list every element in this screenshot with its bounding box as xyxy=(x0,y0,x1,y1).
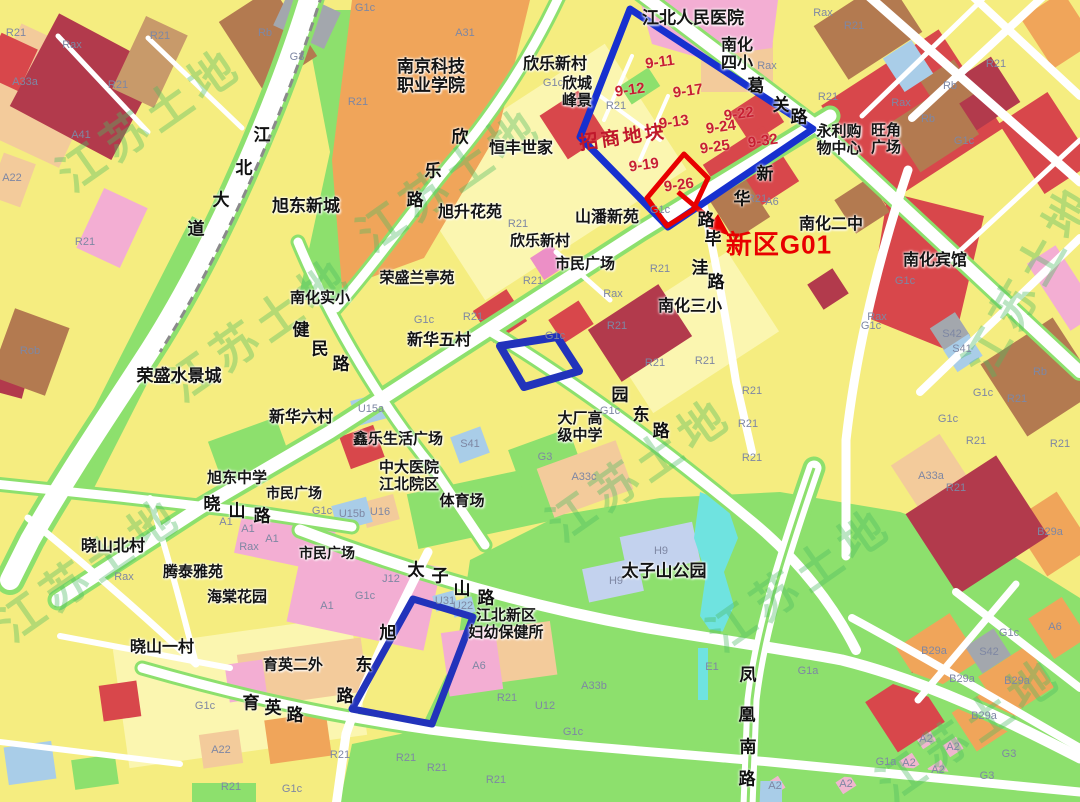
zone-code-r21: R21 xyxy=(348,96,368,108)
zone-code-g3: G3 xyxy=(980,770,995,782)
place-label: 山潘新苑 xyxy=(575,208,639,226)
place-label: 南化宾馆 xyxy=(903,251,967,269)
zone-code-r21: R21 xyxy=(486,774,506,786)
zone-code-a41: A41 xyxy=(71,129,91,141)
zone-code-s42: S42 xyxy=(979,646,999,658)
zone-code-g1c: G1c xyxy=(195,700,215,712)
zone-code-r21: R21 xyxy=(6,27,26,39)
jiangbei-avenue-label-char: 江 xyxy=(254,126,271,145)
zone-code-h9: H9 xyxy=(654,545,668,557)
zone-code-s41: S41 xyxy=(952,343,972,355)
place-label: 腾泰雅苑 xyxy=(163,564,223,581)
zone-code-rax: Rax xyxy=(813,7,833,19)
zone-code-a2: A2 xyxy=(931,764,944,776)
target-parcel-label: 新区G01 xyxy=(726,230,832,259)
biwa-road-label-char: 毕 xyxy=(705,230,722,249)
yuying-road-label-char: 育 xyxy=(243,694,260,713)
place-label: 旺角 广场 xyxy=(871,122,901,156)
zone-code-a2: A2 xyxy=(902,757,915,769)
taizishan-road-label-char: 山 xyxy=(454,580,471,599)
taizishan-road-label-char: 子 xyxy=(432,567,449,586)
zone-code-a2: A2 xyxy=(768,780,781,792)
zone-code-g1c: G1c xyxy=(650,204,670,216)
jiangbei-avenue-label-char: 道 xyxy=(188,220,205,239)
place-label: 旭东新城 xyxy=(272,197,340,216)
parcel-number-9-19: 9-19 xyxy=(628,156,660,177)
place-label: 荣盛水景城 xyxy=(137,367,222,386)
zone-code-a1: A1 xyxy=(320,600,333,612)
zone-code-g1c: G1c xyxy=(861,320,881,332)
zone-code-r21: R21 xyxy=(1050,438,1070,450)
jianmin-road-label-char: 民 xyxy=(312,340,329,359)
fenghuang-south-road-label-char: 路 xyxy=(739,770,756,789)
geguan-road-label-char: 路 xyxy=(791,108,808,127)
place-label: 恒丰世家 xyxy=(489,139,553,157)
zone-code-a2: A2 xyxy=(919,733,932,745)
zone-code-a33b: A33b xyxy=(581,680,607,692)
zone-code-r21: R21 xyxy=(523,275,543,287)
yuandong-road-label-char: 东 xyxy=(633,406,650,425)
place-label: 欣城 峰景 xyxy=(562,75,592,109)
yuying-road-label-char: 路 xyxy=(287,706,304,725)
zone-code-g1a: G1a xyxy=(876,756,897,768)
watermark: 江苏土地 xyxy=(698,498,901,662)
zone-code-g1c: G1c xyxy=(563,726,583,738)
place-label: 晓山一村 xyxy=(130,638,194,656)
place-label: 育英二外 xyxy=(263,657,323,674)
zone-code-a2: A2 xyxy=(839,778,852,790)
zone-code-rob: Rob xyxy=(20,345,40,357)
zone-code-a31: A31 xyxy=(455,27,475,39)
zone-code-g1c: G1c xyxy=(999,627,1019,639)
zone-code-rax: Rax xyxy=(891,97,911,109)
zone-code-b29a: B29a xyxy=(971,710,997,722)
place-label: 大厂高 级中学 xyxy=(557,410,602,444)
fenghuang-south-road-label-char: 南 xyxy=(740,738,757,757)
zone-code-g3: G3 xyxy=(290,51,305,63)
zone-code-g1c: G1c xyxy=(600,405,620,417)
zone-code-g1a: G1a xyxy=(798,665,819,677)
zone-code-rb: Rb xyxy=(921,113,935,125)
xudong-road-label-char: 东 xyxy=(356,656,373,675)
zone-code-r21: R21 xyxy=(738,418,758,430)
xinle-road-label-char: 乐 xyxy=(425,162,442,181)
zone-code-g1c: G1c xyxy=(355,590,375,602)
jiangbei-avenue-label-char: 北 xyxy=(236,159,253,178)
zone-code-g1c: G1c xyxy=(355,2,375,14)
biwa-road-label-char: 洼 xyxy=(692,259,709,278)
zone-code-rax: Rax xyxy=(603,288,623,300)
zone-code-g1c: G1c xyxy=(282,783,302,795)
watermark: 江苏土地 xyxy=(868,648,1071,802)
parcel-number-9-11: 9-11 xyxy=(644,53,675,74)
parcel-number-9-24: 9-24 xyxy=(705,118,737,139)
xinle-road-label-char: 欣 xyxy=(452,128,469,147)
xinhua-road-label-char: 华 xyxy=(734,190,751,209)
place-label: 海棠花园 xyxy=(207,589,267,606)
biwa-road-label-char: 路 xyxy=(708,273,725,292)
jianmin-road-label-char: 路 xyxy=(333,355,350,374)
geguan-road-label-char: 葛 xyxy=(748,77,765,96)
watermark: 江苏土地 xyxy=(48,38,251,202)
zone-code-r21: R21 xyxy=(966,435,986,447)
zone-code-r21: R21 xyxy=(986,58,1006,70)
geguan-road-label-char: 关 xyxy=(773,96,790,115)
place-label: 中大医院 江北院区 xyxy=(379,459,439,493)
zone-code-r21: R21 xyxy=(75,236,95,248)
zone-code-a6: A6 xyxy=(472,660,485,672)
zone-code-rax: Rax xyxy=(62,39,82,51)
zone-code-a22: A22 xyxy=(2,172,22,184)
zoning-map: 江苏土地江苏土地江苏土地江苏土地江苏土地江苏土地江苏土地江苏土地R21R21R2… xyxy=(0,0,1080,802)
zone-code-r21: R21 xyxy=(150,30,170,42)
place-label: 荣盛兰亭苑 xyxy=(379,270,454,287)
zone-code-r21: R21 xyxy=(606,100,626,112)
zone-code-g1c: G1c xyxy=(543,77,563,89)
zone-code-r21: R21 xyxy=(650,263,670,275)
place-label: 市民广场 xyxy=(266,487,322,503)
zone-code-g3: G3 xyxy=(1002,748,1017,760)
zone-code-g3: G3 xyxy=(538,451,553,463)
zone-code-g1c: G1c xyxy=(973,387,993,399)
place-label: 永利购 物中心 xyxy=(816,123,861,157)
zone-code-u16: U16 xyxy=(370,506,390,518)
parcel-number-9-17: 9-17 xyxy=(672,82,704,103)
label-layer: 江苏土地江苏土地江苏土地江苏土地江苏土地江苏土地江苏土地江苏土地R21R21R2… xyxy=(0,0,1080,802)
xinhua-road-label-char: 路 xyxy=(698,211,715,230)
zone-code-rb: Rb xyxy=(258,27,272,39)
place-label: 欣乐新村 xyxy=(510,233,570,250)
xinhua-road-label-char: 新 xyxy=(757,165,774,184)
zone-code-r21: R21 xyxy=(645,357,665,369)
zone-code-r21: R21 xyxy=(844,20,864,32)
zone-code-g1c: G1c xyxy=(545,330,565,342)
place-label: 旭升花苑 xyxy=(438,203,502,221)
zone-code-a6: A6 xyxy=(765,196,778,208)
zone-code-g1c: G1c xyxy=(414,314,434,326)
watermark: 江苏土地 xyxy=(158,248,361,412)
fenghuang-south-road-label-char: 凰 xyxy=(739,706,756,725)
zone-code-a2: A2 xyxy=(946,741,959,753)
jianmin-road-label-char: 健 xyxy=(293,321,310,340)
yuandong-road-label-char: 园 xyxy=(612,386,629,405)
zone-code-r21: R21 xyxy=(108,79,128,91)
place-label: 太子山公园 xyxy=(622,562,707,581)
xiaoshan-road-label-char: 山 xyxy=(229,502,246,521)
place-label: 晓山北村 xyxy=(81,537,145,555)
zone-code-j12: J12 xyxy=(382,573,400,585)
promo-area-label: 招商地块 xyxy=(578,121,668,154)
zone-code-a6: A6 xyxy=(1048,621,1061,633)
zone-code-b29a: B29a xyxy=(1004,675,1030,687)
zone-code-b29a: B29a xyxy=(949,673,975,685)
place-label: 欣乐新村 xyxy=(523,55,587,73)
zone-code-r21: R21 xyxy=(742,452,762,464)
parcel-number-9-26: 9-26 xyxy=(663,176,695,197)
xudong-road-label-char: 旭 xyxy=(380,624,397,643)
zone-code-s41: S41 xyxy=(460,438,480,450)
zone-code-r21: R21 xyxy=(607,320,627,332)
place-label: 鑫乐生活广场 xyxy=(353,431,443,448)
zone-code-e1: E1 xyxy=(705,661,718,673)
zone-code-a22: A22 xyxy=(211,744,231,756)
parcel-number-9-25: 9-25 xyxy=(699,138,731,159)
yuying-road-label-char: 英 xyxy=(265,699,282,718)
place-label: 南化 四小 xyxy=(721,36,753,72)
place-label: 旭东中学 xyxy=(207,470,267,487)
xudong-road-label-char: 路 xyxy=(337,687,354,706)
zone-code-u12: U12 xyxy=(535,700,555,712)
place-label: 南京科技 职业学院 xyxy=(397,58,465,96)
xinle-road-label-char: 路 xyxy=(407,191,424,210)
zone-code-a1: A1 xyxy=(265,533,278,545)
place-label: 市民广场 xyxy=(555,256,615,273)
zone-code-rax: Rax xyxy=(114,571,134,583)
zone-code-rax: Rax xyxy=(239,541,259,553)
zone-code-r21: R21 xyxy=(818,91,838,103)
zone-code-rax: Rax xyxy=(757,60,777,72)
zone-code-r21: R21 xyxy=(1007,393,1027,405)
zone-code-g1c: G1c xyxy=(312,505,332,517)
xiaoshan-road-label-char: 路 xyxy=(254,507,271,526)
place-label: 体育场 xyxy=(439,493,484,510)
zone-code-r21: R21 xyxy=(330,749,350,761)
zone-code-g1c: G1c xyxy=(954,135,974,147)
jiangbei-avenue-label-char: 大 xyxy=(213,191,230,210)
zone-code-r21: R21 xyxy=(427,762,447,774)
zone-code-rb: Rb xyxy=(1033,366,1047,378)
yuandong-road-label-char: 路 xyxy=(653,422,670,441)
fenghuang-south-road-label-char: 凤 xyxy=(740,666,757,685)
zone-code-u15a: U15a xyxy=(358,403,384,415)
place-label: 新华六村 xyxy=(269,408,333,426)
zone-code-g1c: G1c xyxy=(938,413,958,425)
zone-code-g1c: G1c xyxy=(895,275,915,287)
zone-code-r21: R21 xyxy=(497,692,517,704)
xiaoshan-road-label-char: 晓 xyxy=(204,495,221,514)
zone-code-r21: R21 xyxy=(946,482,966,494)
zone-code-r21: R21 xyxy=(396,752,416,764)
zone-code-a33a: A33a xyxy=(12,76,38,88)
watermark: 江苏土地 xyxy=(955,175,1080,384)
zone-code-u15b: U15b xyxy=(339,508,365,520)
zone-code-r21: R21 xyxy=(695,355,715,367)
zone-code-r21: R21 xyxy=(742,385,762,397)
place-label: 江北人民医院 xyxy=(642,9,744,28)
zone-code-b29a: B29a xyxy=(921,645,947,657)
zone-code-s42: S42 xyxy=(942,328,962,340)
zone-code-b29a: B29a xyxy=(1037,526,1063,538)
zone-code-r21: R21 xyxy=(221,781,241,793)
zone-code-a33c: A33c xyxy=(571,471,596,483)
taizishan-road-label-char: 路 xyxy=(478,589,495,608)
place-label: 江北新区 妇幼保健所 xyxy=(468,607,543,641)
place-label: 市民广场 xyxy=(299,547,355,563)
zone-code-r21: R21 xyxy=(463,311,483,323)
parcel-number-9-32: 9-32 xyxy=(747,132,779,153)
place-label: 新华五村 xyxy=(407,331,471,349)
zone-code-a33a: A33a xyxy=(918,470,944,482)
zone-code-r21: R21 xyxy=(508,218,528,230)
taizishan-road-label-char: 太 xyxy=(408,561,425,580)
place-label: 南化三小 xyxy=(658,297,722,315)
parcel-number-9-12: 9-12 xyxy=(614,81,646,102)
place-label: 南化实小 xyxy=(290,290,350,307)
zone-code-rb: Rb xyxy=(943,80,957,92)
